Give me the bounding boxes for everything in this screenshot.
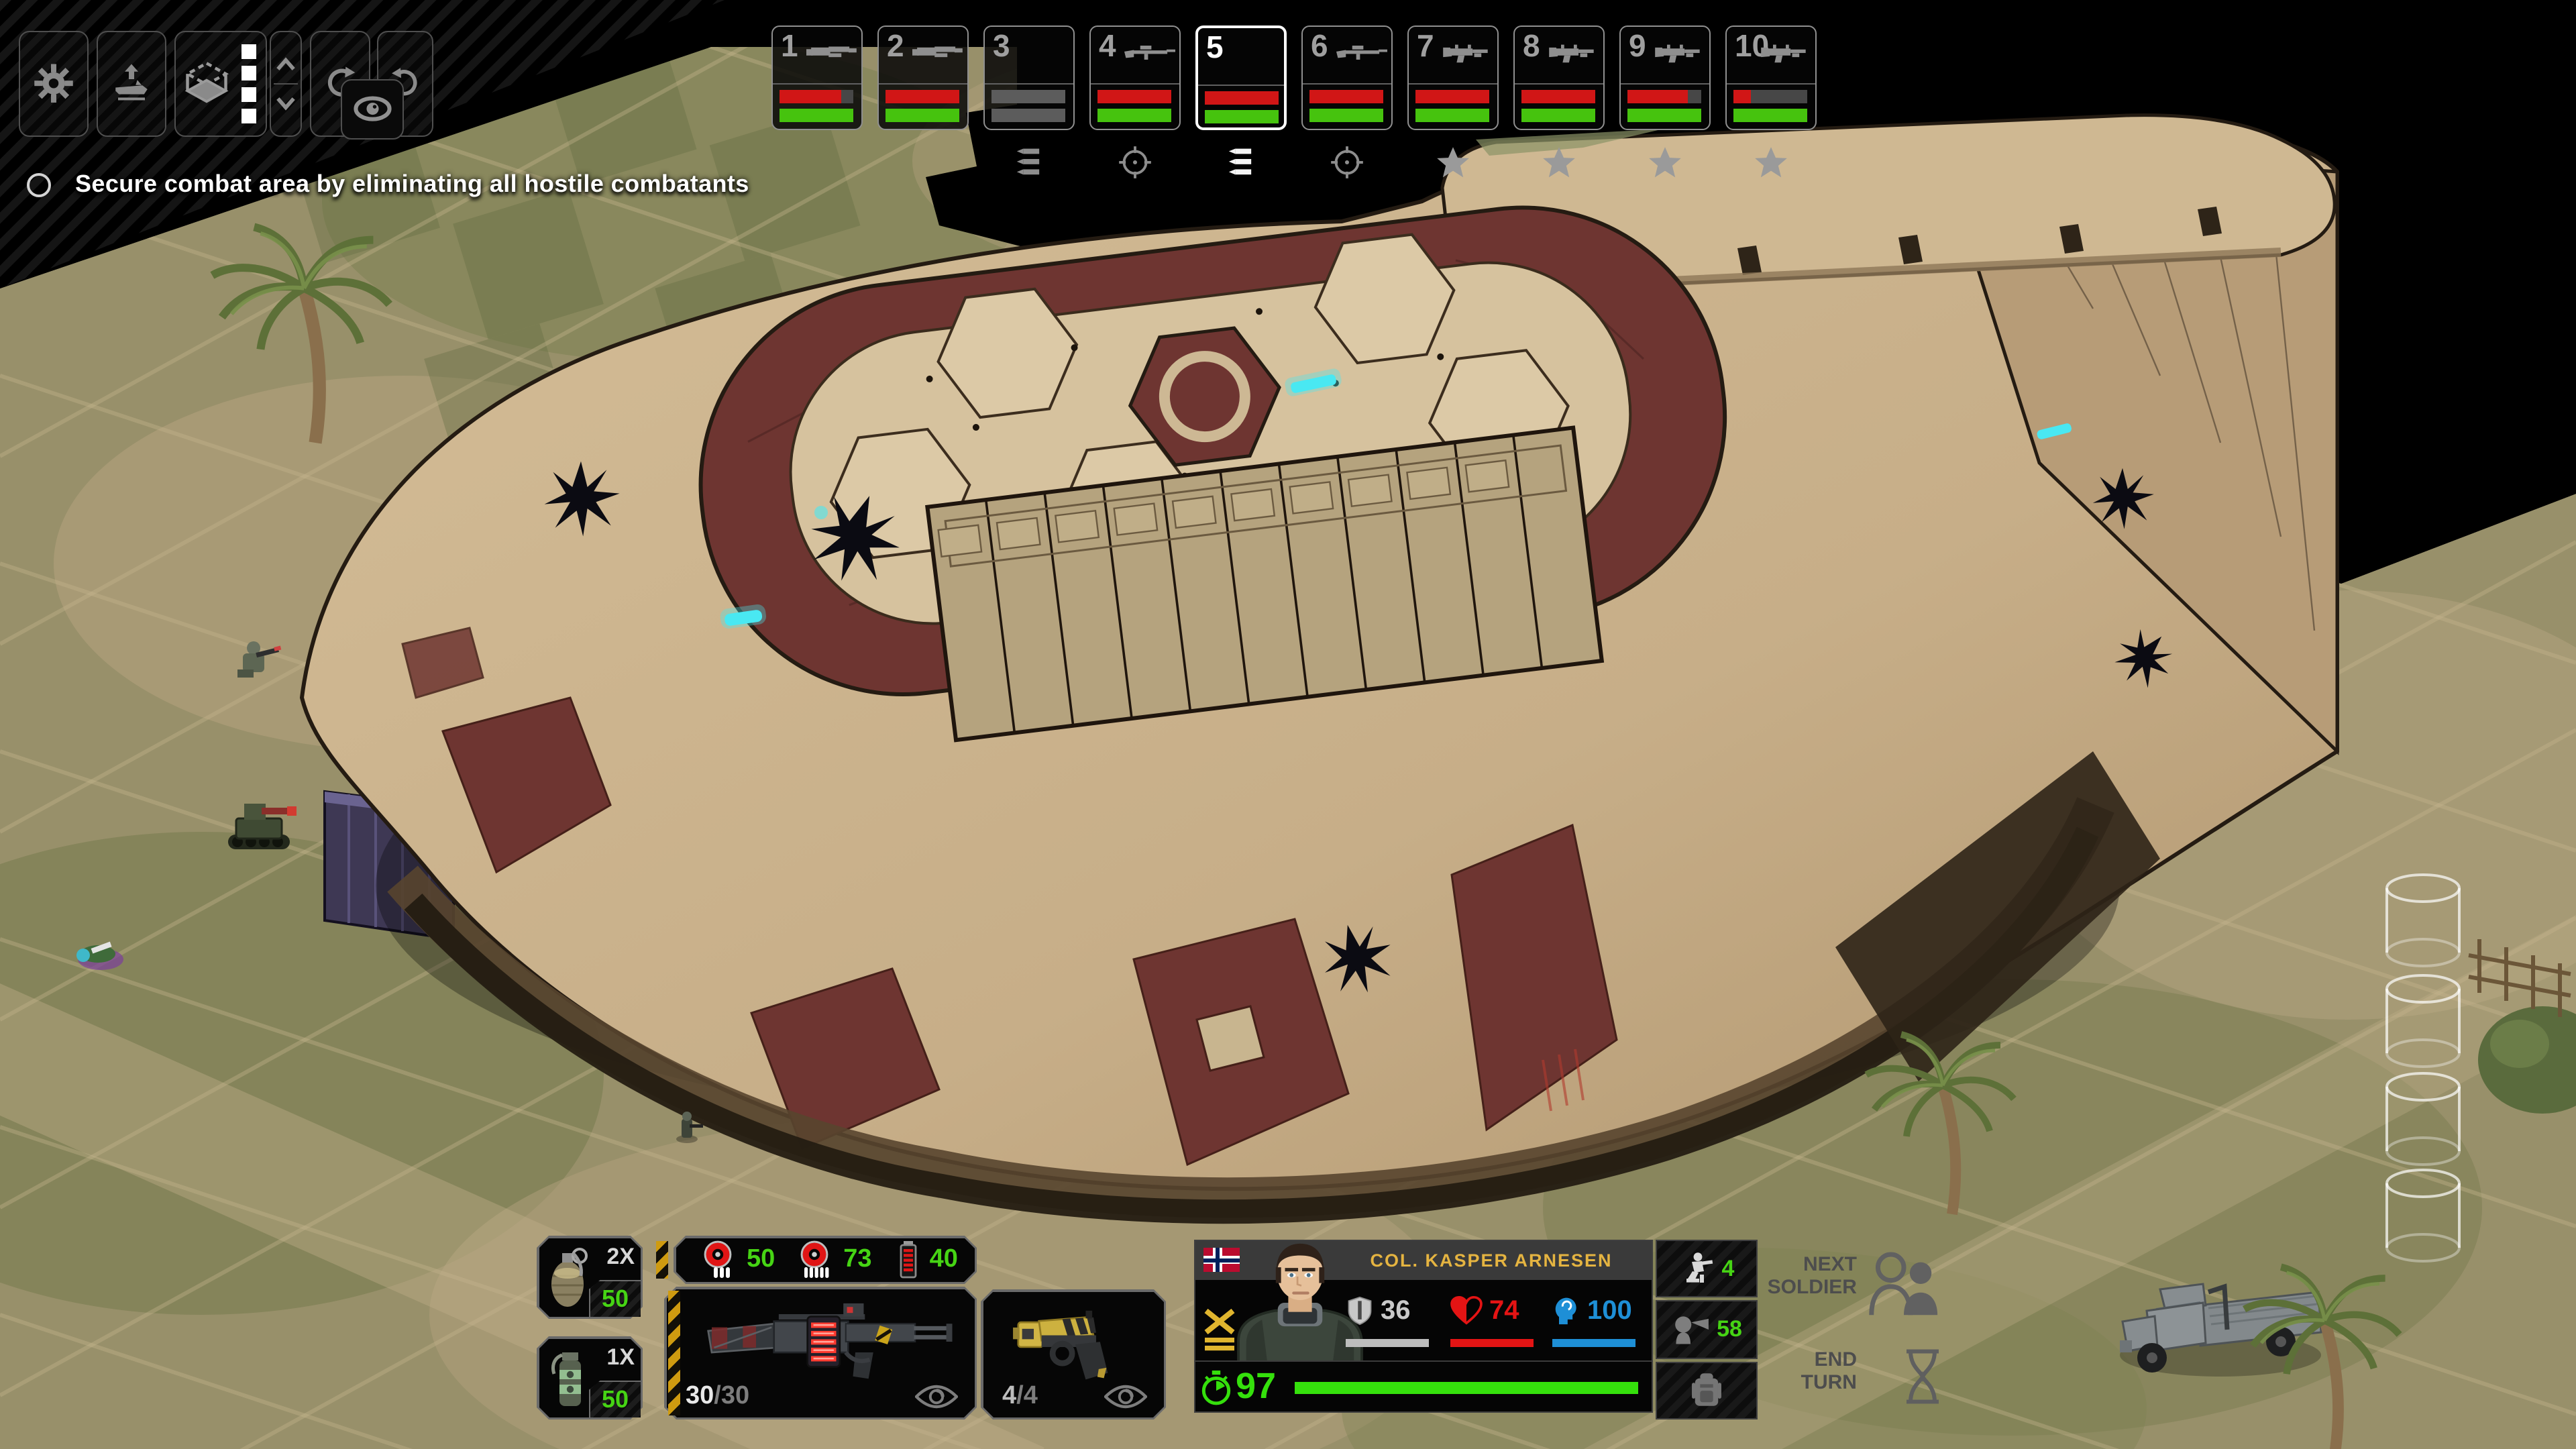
ap-bar	[780, 109, 853, 122]
weapon-icon	[806, 39, 857, 66]
morale-head-icon	[1552, 1296, 1580, 1326]
sidearm-panel[interactable]: 4/4	[981, 1289, 1166, 1419]
ap-bar	[1309, 109, 1383, 122]
vision-stat[interactable]: 58	[1656, 1301, 1758, 1359]
stopwatch-icon	[1201, 1370, 1232, 1406]
health-bar	[885, 90, 959, 103]
health-bar	[1415, 90, 1489, 103]
shield-icon	[1346, 1296, 1374, 1326]
fire-mode-bar: 50 73 40	[674, 1236, 977, 1284]
slot-number: 7	[1417, 31, 1434, 62]
roster-slot-7[interactable]: 7	[1407, 25, 1499, 130]
two-soldiers-icon	[1868, 1248, 1940, 1320]
roster-slot-10[interactable]: 10	[1725, 25, 1817, 130]
hazard-stripe	[668, 1291, 680, 1415]
weapon-icon	[1018, 39, 1069, 66]
gear-icon	[34, 53, 74, 115]
time-units-strip: 97	[1195, 1360, 1652, 1414]
roster-slot-5-selected[interactable]: 5	[1195, 25, 1287, 130]
grenade-ap-cost-tab: 50	[588, 1279, 641, 1317]
slot-number: 3	[993, 31, 1010, 62]
health-bar	[1521, 90, 1595, 103]
slot-status-3-ammo-icon	[983, 140, 1075, 185]
ap-bar	[1205, 110, 1279, 123]
soldier-name: COL. KASPER ARNESEN	[1336, 1241, 1646, 1280]
time-units-value: 97	[1236, 1366, 1276, 1407]
slot-number: 1	[781, 31, 798, 62]
rank-insignia	[1202, 1308, 1237, 1354]
slot-status-8-star-icon	[1513, 140, 1605, 185]
weapon-icon	[912, 39, 963, 66]
settings-button[interactable]	[19, 31, 89, 137]
frag-grenade-icon	[547, 1241, 593, 1313]
dropship-icon	[111, 53, 152, 115]
armor-stat: 36	[1346, 1289, 1434, 1354]
chevron-down-icon[interactable]	[272, 85, 299, 119]
roster-slot-3[interactable]: 3	[983, 25, 1075, 130]
reload-action[interactable]: 40	[896, 1240, 958, 1280]
weapon-icon	[1124, 39, 1175, 66]
morale-stat: 100	[1552, 1289, 1641, 1354]
ap-bar	[1627, 109, 1701, 122]
ammo-counter: 30/30	[686, 1382, 749, 1411]
health-stat: 74	[1450, 1289, 1539, 1354]
slot-number: 5	[1206, 32, 1224, 63]
next-soldier-label-2: SOLDIER	[1744, 1277, 1857, 1300]
roster-slot-6[interactable]: 6	[1301, 25, 1393, 130]
ap-bar	[1097, 109, 1171, 122]
health-bar	[1627, 90, 1701, 103]
evacuate-dropship-button[interactable]	[97, 31, 166, 137]
roster-slot-2[interactable]: 2	[877, 25, 969, 130]
health-bar	[1733, 90, 1807, 103]
end-turn-label-2: TURN	[1744, 1372, 1857, 1395]
burst3-reticle-icon	[697, 1240, 737, 1280]
slot-status-7-star-icon	[1407, 140, 1499, 185]
fire-mode-burst5[interactable]: 73	[794, 1240, 871, 1280]
sidearm-ammo-counter: 4/4	[1002, 1382, 1038, 1411]
floor-select-button[interactable]	[174, 31, 267, 137]
health-bar	[1205, 91, 1279, 105]
weapon-icon	[1229, 40, 1280, 67]
machine-gun-image	[691, 1297, 965, 1386]
grenade-qty: 1X	[606, 1344, 635, 1371]
grenade-ap-cost-tab: 50	[588, 1380, 641, 1417]
grenade-slot-frag[interactable]: 2X 50	[537, 1236, 643, 1319]
ap-bar	[1521, 109, 1595, 122]
slot-status-4-overwatch-icon	[1089, 140, 1181, 185]
magazine-icon	[896, 1240, 920, 1280]
hourglass-icon	[1900, 1348, 1945, 1405]
health-bar	[1309, 90, 1383, 103]
slot-status-5-ammo-icon	[1195, 140, 1287, 185]
health-bar	[991, 90, 1065, 103]
battlescape-screen: Secure combat area by eliminating all ho…	[0, 0, 2576, 1449]
ap-bar	[885, 109, 959, 122]
soldier-roster: 1 2 3 4 5 6 7	[771, 25, 1817, 130]
next-soldier-label-1: NEXT	[1744, 1253, 1857, 1277]
weapon-icon	[1760, 39, 1811, 66]
floor-up-down-buttons[interactable]	[270, 31, 302, 137]
reaction-eye-icon[interactable]	[915, 1385, 958, 1409]
end-turn-label-1: END	[1744, 1348, 1857, 1372]
eye-icon	[352, 89, 394, 129]
floor-level-indicator	[241, 44, 256, 123]
roster-slot-9[interactable]: 9	[1619, 25, 1711, 130]
backpack-icon	[1689, 1372, 1724, 1409]
weapon-icon	[1548, 39, 1599, 66]
roster-slot-4[interactable]: 4	[1089, 25, 1181, 130]
ap-bar	[1415, 109, 1489, 122]
slot-number: 6	[1311, 31, 1328, 62]
slot-status-9-star-icon	[1619, 140, 1711, 185]
crouch-toggle[interactable]: 4	[1656, 1240, 1758, 1298]
slot-number: 8	[1523, 31, 1540, 62]
slot-number: 9	[1629, 31, 1646, 62]
heart-icon	[1450, 1296, 1483, 1326]
next-soldier-button[interactable]: NEXT SOLDIER	[1744, 1248, 1940, 1320]
weapon-icon	[1336, 39, 1387, 66]
stun-pistol-image	[1013, 1305, 1136, 1386]
stun-grenade-icon	[547, 1342, 593, 1414]
open-inventory[interactable]	[1656, 1361, 1758, 1419]
soldier-action-column: 4 58	[1656, 1240, 1758, 1419]
burst5-reticle-icon	[794, 1240, 834, 1280]
slot-status-1	[771, 140, 863, 185]
hazard-stripe-notch	[656, 1241, 668, 1279]
slot-number: 2	[887, 31, 904, 62]
roster-slot-8[interactable]: 8	[1513, 25, 1605, 130]
grenade-slot-stun[interactable]: 1X 50	[537, 1336, 643, 1419]
roster-status-row	[771, 140, 1817, 185]
health-bar	[780, 90, 853, 103]
head-sight-icon	[1671, 1313, 1709, 1346]
slot-status-6-overwatch-icon	[1301, 140, 1393, 185]
objective-text: Secure combat area by eliminating all ho…	[75, 170, 749, 199]
weapon-icon	[1654, 39, 1705, 66]
ap-bar	[1733, 109, 1807, 122]
kneeling-soldier-icon	[1679, 1250, 1714, 1287]
game-viewport: Secure combat area by eliminating all ho…	[0, 0, 2576, 1449]
roster-slot-1[interactable]: 1	[771, 25, 863, 130]
battlefield-scene[interactable]	[0, 0, 2576, 1449]
slot-number: 4	[1099, 31, 1116, 62]
slot-status-10-star-icon	[1725, 140, 1817, 185]
chevron-up-icon[interactable]	[272, 48, 299, 83]
ap-bar	[991, 109, 1065, 122]
objective-incomplete-icon	[27, 172, 51, 197]
weapon-icon	[1442, 39, 1493, 66]
health-bar	[1097, 90, 1171, 103]
layers-icon	[181, 58, 232, 109]
soldier-info-panel[interactable]: COL. KASPER ARNESEN 36 74	[1194, 1240, 1653, 1413]
slot-status-2	[877, 140, 969, 185]
toggle-vision-button[interactable]	[341, 79, 404, 140]
primary-weapon-panel[interactable]: 30/30	[664, 1287, 977, 1419]
end-turn-button[interactable]: END TURN	[1744, 1348, 1945, 1405]
grenade-qty: 2X	[606, 1244, 635, 1271]
time-units-bar	[1295, 1382, 1638, 1394]
fire-mode-burst3[interactable]: 50	[697, 1240, 775, 1280]
mission-objective: Secure combat area by eliminating all ho…	[27, 170, 749, 199]
reaction-eye-icon[interactable]	[1104, 1385, 1147, 1409]
